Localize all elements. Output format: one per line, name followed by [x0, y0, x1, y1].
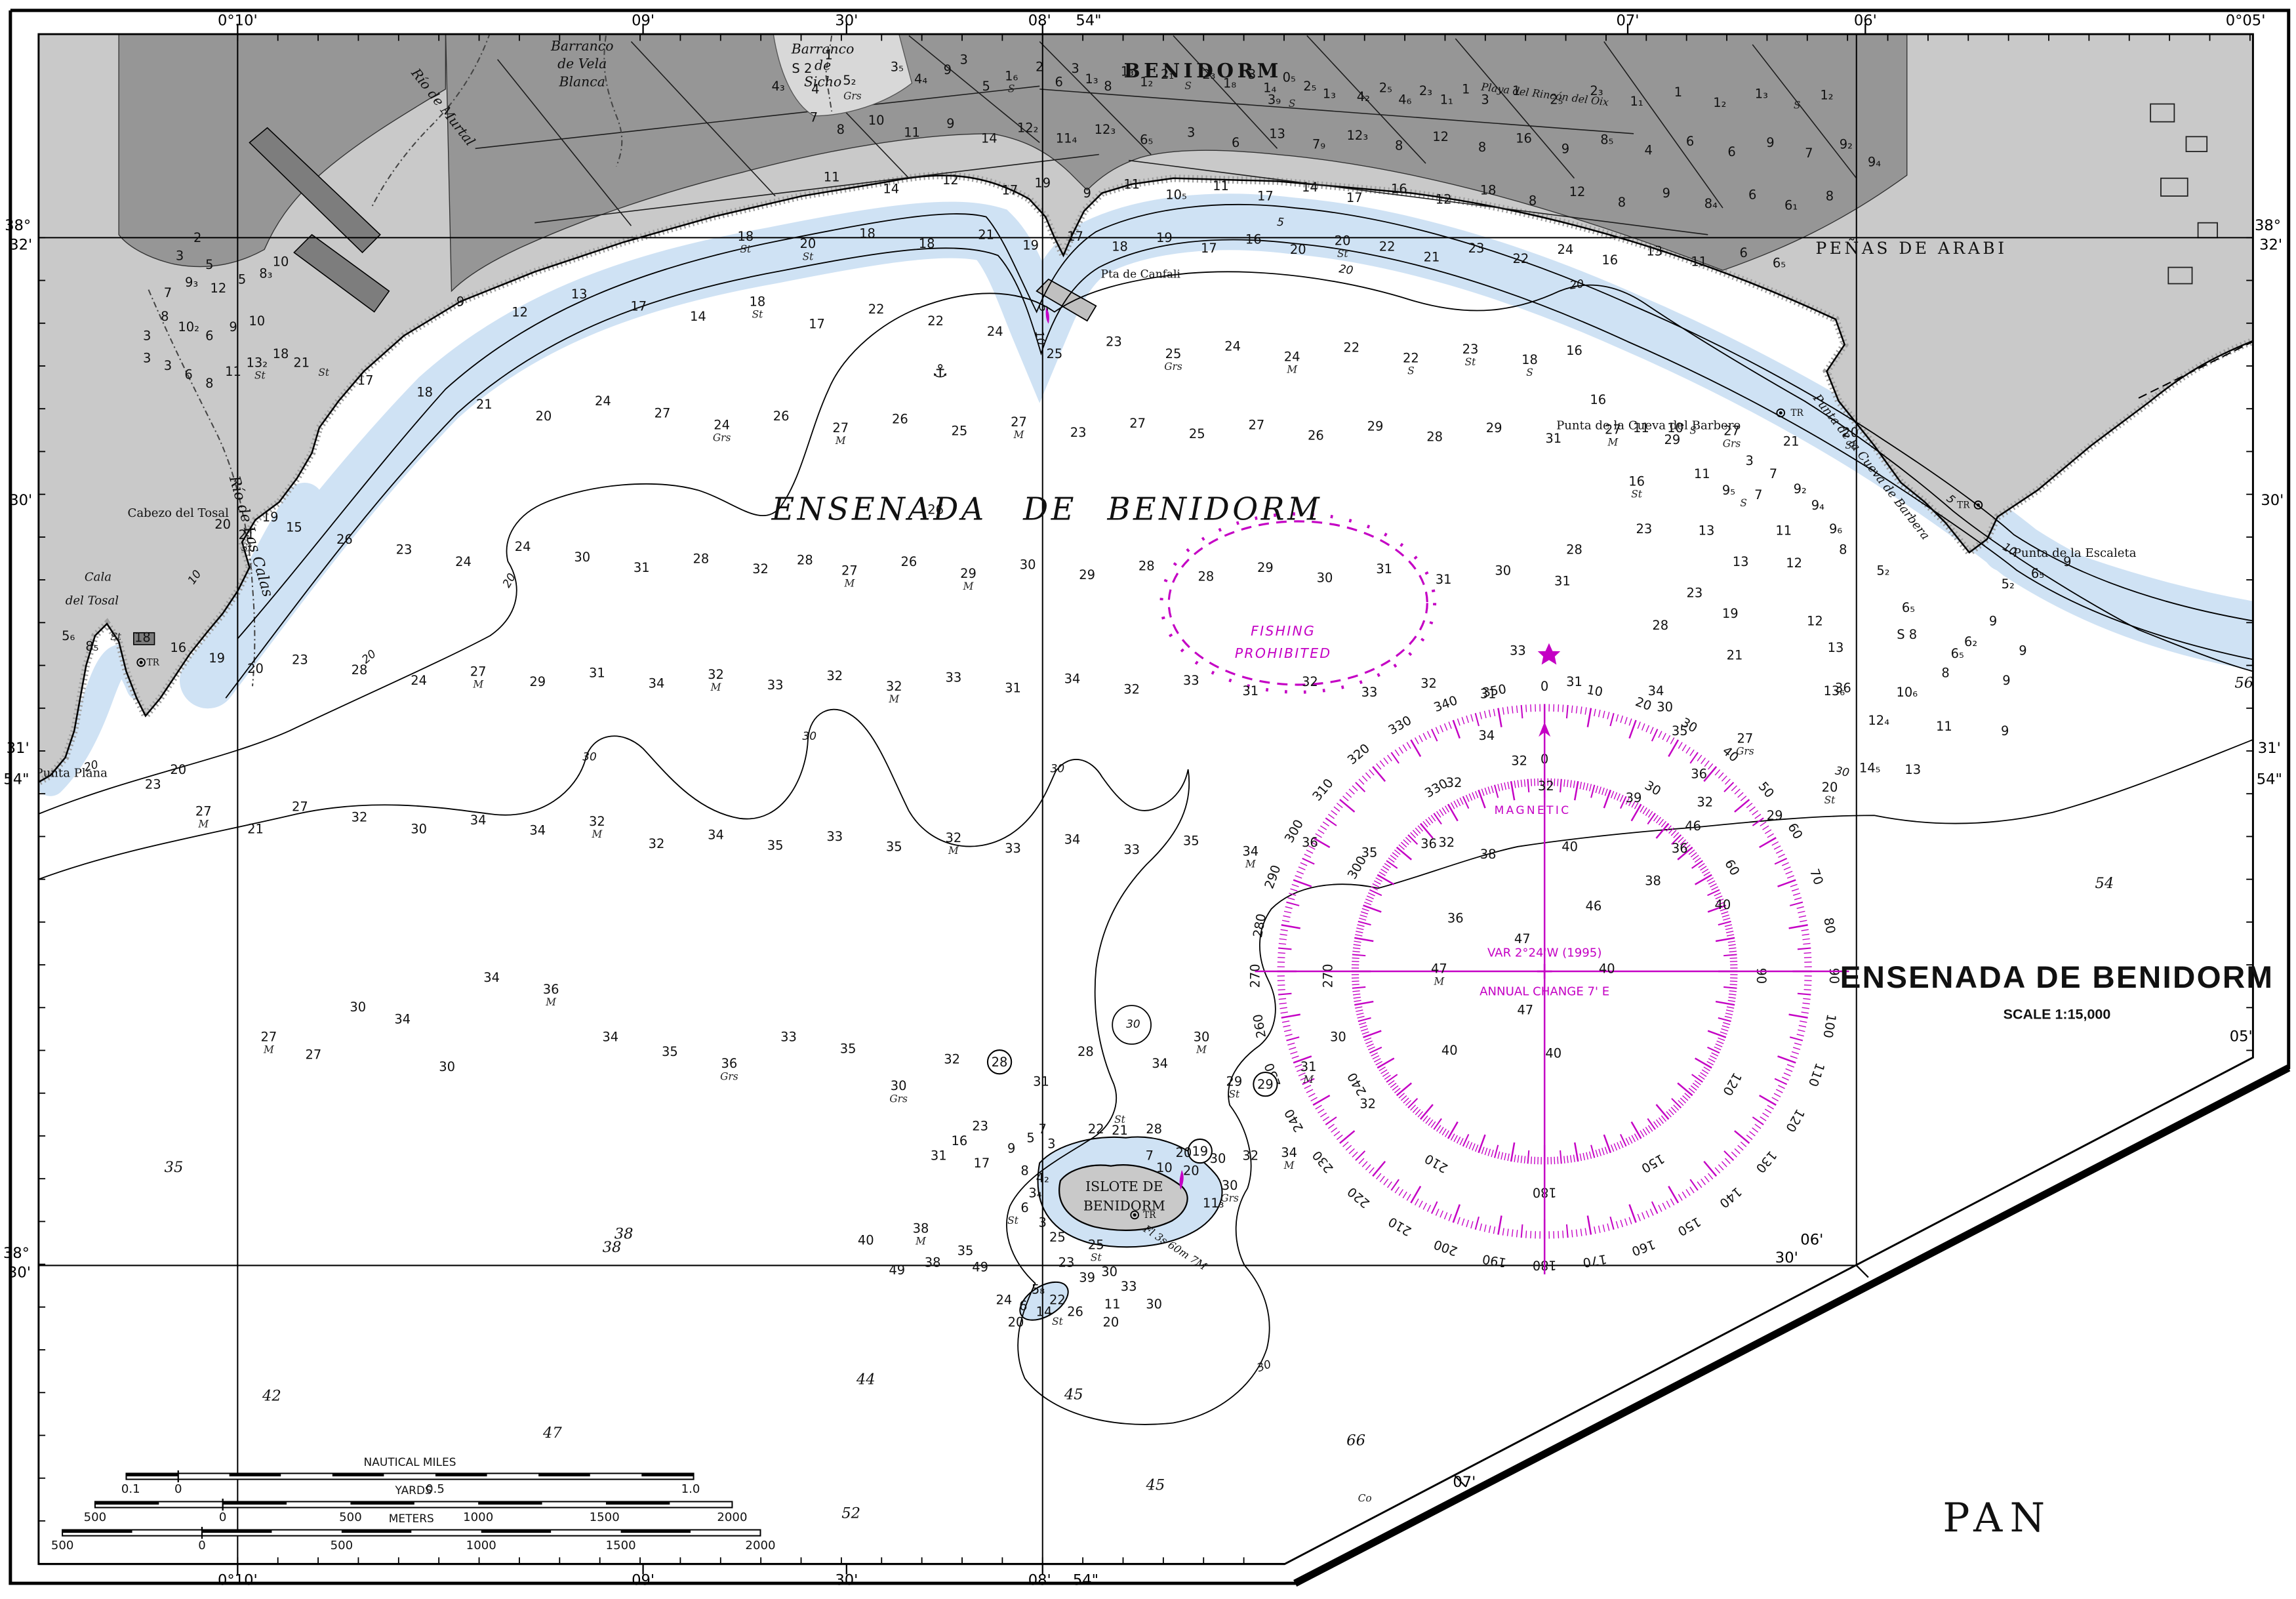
sounding: 36	[1447, 910, 1464, 925]
sounding: 1₂	[1820, 88, 1833, 103]
sounding: 11	[1691, 254, 1707, 269]
sounding: 23	[1070, 425, 1087, 440]
fishing-label-line1: FISHING	[1251, 623, 1316, 639]
sounding: 21	[1424, 250, 1440, 265]
sounding: 16	[1628, 474, 1645, 489]
sounding: 38	[1645, 874, 1661, 889]
sounding: 23	[1462, 342, 1479, 357]
grid-label-top: 09'	[632, 12, 655, 29]
sounding: 32	[1697, 795, 1713, 810]
sounding: 23	[1468, 241, 1485, 256]
sounding: 6	[184, 367, 192, 382]
sounding: 19	[1156, 230, 1173, 245]
sounding: 27	[655, 405, 671, 420]
sounding: 39	[1626, 790, 1642, 805]
compass-inner-label: 90	[1754, 968, 1769, 984]
sounding: 40	[1441, 1043, 1458, 1058]
sounding: 20	[800, 236, 816, 251]
sounding: 22	[868, 302, 885, 317]
sounding: 10	[249, 314, 265, 329]
grid-label-bottom: 09'	[632, 1571, 655, 1589]
sounding: 16	[1566, 343, 1582, 358]
sounding: 11	[1104, 1297, 1121, 1312]
scalebar-segment	[62, 1530, 132, 1533]
sounding: 33	[1361, 685, 1378, 700]
tick	[1554, 779, 1555, 786]
scalebar-label: 500	[339, 1510, 362, 1524]
sounding: 9	[1989, 613, 1997, 628]
sounding: 6₅	[1140, 132, 1153, 148]
sounding: 11	[1694, 466, 1710, 481]
sounding: Grs	[889, 1093, 908, 1104]
sounding: 23	[1636, 521, 1653, 536]
sounding: 27	[1011, 415, 1027, 430]
sounding: 5₂	[2002, 577, 2015, 592]
sounding: 32	[886, 679, 902, 694]
sounding: 24	[1224, 338, 1241, 354]
circled-sounding: 19	[1192, 1144, 1208, 1159]
sounding: M	[1283, 1160, 1295, 1171]
scalebar-label: 2000	[745, 1539, 775, 1552]
scalebar-label: 1000	[463, 1510, 493, 1524]
place-name-del-tosal: del Tosal	[66, 594, 119, 608]
compass-outer-label: 90	[1826, 968, 1842, 984]
sounding: 28	[1146, 1122, 1162, 1137]
sounding: 29	[1079, 567, 1095, 582]
tick	[1352, 961, 1359, 962]
sounding: 8	[1618, 195, 1626, 210]
sounding: 13₂	[246, 355, 268, 370]
sounding: 22	[1513, 251, 1529, 266]
sounding: 2₃	[1419, 83, 1432, 98]
sounding: 4	[1645, 143, 1653, 158]
tick	[1563, 704, 1563, 712]
tick	[1278, 953, 1285, 954]
sounding: 16	[1245, 232, 1262, 247]
sounding: 38	[913, 1221, 929, 1236]
sounding: 22	[1379, 239, 1396, 254]
sea-name-ensenada: ENSENADA	[771, 492, 987, 528]
sounding: 9₅	[1722, 483, 1735, 498]
sounding: 30	[1657, 700, 1673, 715]
grid-label-right: 31'	[2258, 740, 2281, 757]
sounding: 8	[1826, 189, 1834, 204]
sounding: M	[710, 681, 722, 693]
sounding: St	[1465, 356, 1477, 368]
place-name-tr: TR	[1957, 500, 1970, 510]
sounding: 31	[1545, 431, 1561, 446]
sounding: 9₂	[1794, 481, 1807, 496]
deep-sounding: 54	[2095, 875, 2114, 892]
sounding: 33	[826, 829, 843, 844]
sounding: 17	[974, 1156, 990, 1171]
sounding: 24	[455, 554, 472, 569]
deep-sounding: 47	[542, 1425, 562, 1442]
scalebar-label: 1.0	[681, 1482, 700, 1496]
sounding: 40	[1545, 1045, 1561, 1061]
sounding: 17	[357, 373, 374, 388]
sounding: 36	[1672, 841, 1688, 856]
sounding: 4₄	[914, 71, 927, 87]
sounding: 11	[904, 125, 920, 140]
sounding: St	[803, 251, 815, 262]
deep-sounding: 45	[1145, 1476, 1165, 1493]
compass-outer-label: 0	[1541, 679, 1548, 694]
sounding: 17	[809, 316, 825, 331]
sounding: 28	[693, 551, 710, 566]
sounding: M	[835, 435, 847, 447]
sounding: 30	[1210, 1151, 1226, 1166]
circled-sounding: 29	[1257, 1077, 1274, 1092]
contour-label: 10	[1032, 330, 1047, 346]
sounding: 30	[350, 1000, 366, 1015]
tick	[1554, 1157, 1555, 1164]
sounding: 8	[161, 309, 169, 324]
sounding: 3	[1047, 1137, 1055, 1152]
sounding: St	[110, 631, 122, 643]
sounding: 1₂	[1713, 95, 1726, 110]
grid-label-diagonal: 07'	[1453, 1474, 1476, 1491]
sounding: 2₅	[1303, 79, 1316, 94]
tick	[1526, 704, 1527, 712]
sounding: 1₁	[1630, 94, 1643, 109]
place-name-barranco: Barranco	[791, 41, 855, 57]
sounding: 23	[1058, 1255, 1075, 1270]
sounding: 8₅	[85, 639, 98, 654]
sounding: St	[1824, 794, 1836, 806]
tick	[1730, 981, 1737, 982]
scalebar-label: 1500	[590, 1510, 620, 1524]
sounding: 6	[1232, 135, 1239, 150]
sounding: 4₃	[772, 79, 785, 94]
sounding: 4₂	[1357, 89, 1370, 104]
sounding: 49	[972, 1259, 988, 1274]
sounding: 7₉	[1312, 136, 1325, 152]
sounding: 6	[1019, 1298, 1027, 1313]
scalebar-label: 0	[198, 1539, 206, 1552]
contour-label: 30	[802, 730, 816, 743]
sounding: 22	[1403, 351, 1419, 366]
sounding: 32	[826, 668, 843, 683]
sounding: 17	[1346, 190, 1363, 205]
place-name-de-vela: de Vela	[557, 56, 607, 71]
sounding: 18	[750, 294, 766, 310]
sounding: 33	[1123, 842, 1140, 857]
sounding: 21	[476, 397, 493, 412]
sounding: 13	[571, 287, 588, 302]
sounding: 12₃	[1095, 122, 1116, 137]
sounding: 13	[1269, 127, 1285, 142]
sounding: 18	[859, 226, 876, 241]
sounding: 34	[708, 827, 724, 842]
sounding: 7	[1146, 1148, 1154, 1164]
sounding: S	[1008, 83, 1015, 94]
sounding: 34	[1242, 843, 1259, 859]
sounding: 36	[721, 1056, 738, 1071]
scalebar-label: 0.1	[121, 1482, 140, 1496]
contour-label: 30	[1834, 764, 1851, 779]
sounding: 32	[944, 1051, 960, 1066]
sounding: 21	[1727, 647, 1743, 662]
sounding: 14	[1302, 180, 1318, 195]
sounding: 34	[1648, 683, 1664, 698]
sounding: 31	[1566, 674, 1582, 689]
sounding: 33	[1005, 841, 1021, 856]
sounding: 29	[1767, 808, 1783, 823]
grid-label-bottom: 54"	[1073, 1571, 1098, 1589]
sounding: 8	[205, 376, 213, 391]
sounding: 30	[1194, 1029, 1210, 1044]
sounding: 1₆	[1005, 68, 1018, 83]
sounding: M	[1196, 1044, 1207, 1056]
sounding: 6	[1055, 74, 1062, 89]
scalebar-label: 500	[331, 1539, 353, 1552]
tick	[1278, 985, 1285, 986]
sounding: 31	[931, 1148, 947, 1164]
sounding: 12	[1786, 556, 1802, 571]
sounding: S	[1289, 98, 1296, 110]
place-name-benidorm: BENIDORM	[1124, 59, 1282, 82]
sounding: 6	[1727, 144, 1735, 159]
sounding: 0₅	[1283, 70, 1296, 85]
sounding: 13	[1733, 554, 1749, 569]
sounding: 28	[1078, 1044, 1094, 1059]
sounding: 39	[1079, 1270, 1095, 1285]
sounding: 9	[1007, 1141, 1015, 1156]
sounding: 28	[1652, 618, 1668, 633]
sounding: 3₉	[1268, 92, 1281, 108]
sounding: 18	[737, 229, 754, 244]
sounding: 8	[1104, 79, 1112, 94]
circled-sounding: 28	[992, 1055, 1008, 1070]
sounding: 15	[286, 520, 302, 535]
sounding: 4₂	[1036, 1171, 1049, 1186]
sounding: 29	[1486, 420, 1502, 435]
sounding: 27	[305, 1047, 321, 1063]
sounding: 11	[1936, 719, 1952, 734]
sounding: 27	[832, 420, 849, 435]
tick	[1804, 985, 1811, 986]
sounding: 36	[1302, 835, 1318, 850]
tick	[1558, 704, 1559, 712]
sounding: St	[1091, 1252, 1102, 1264]
nautical-chart-canvas[interactable]: 0102030405060708090100110120130140150160…	[0, 0, 2296, 1598]
sounding: 35	[1672, 723, 1688, 739]
sounding: 19	[262, 510, 279, 525]
sounding: 14	[1036, 1304, 1053, 1319]
place-name-punta-de-la-escaleta: Punta de la Escaleta	[2013, 546, 2137, 560]
sounding: 28	[1566, 542, 1582, 557]
sounding: 20	[1290, 242, 1306, 257]
sounding: 3₅	[891, 60, 904, 75]
sounding: 31	[1033, 1074, 1049, 1089]
scalebar-title: NAUTICAL MILES	[364, 1456, 456, 1469]
sounding: M	[1013, 429, 1025, 441]
tick	[1278, 990, 1285, 990]
grid-label-left: 38°	[5, 217, 31, 234]
sounding: M	[1302, 1074, 1314, 1085]
sounding: 11	[1123, 177, 1140, 192]
sounding: 25	[1165, 346, 1182, 361]
sounding: 32	[752, 561, 769, 577]
scalebar-segment	[478, 1502, 542, 1505]
sounding: 28	[1426, 430, 1443, 445]
compass-inner-label: 270	[1320, 963, 1335, 988]
place-name-islote-de: ISLOTE DE	[1085, 1179, 1163, 1194]
sounding: 24	[1284, 349, 1300, 364]
sounding: 32	[1511, 753, 1527, 768]
sounding: 9₄	[1811, 498, 1824, 513]
sounding: 5₆	[62, 628, 75, 643]
sounding: 32	[1123, 682, 1140, 697]
sounding: M	[843, 578, 855, 590]
sounding: M	[591, 828, 603, 840]
sounding: 1₃	[1323, 86, 1336, 101]
sounding: 18	[134, 630, 151, 645]
scalebar-label: 2000	[717, 1510, 747, 1524]
sounding: 8	[1478, 140, 1486, 155]
sounding: 13	[1646, 244, 1662, 259]
sounding: 34	[649, 676, 665, 691]
sounding: St	[752, 309, 764, 321]
sounding: 21	[247, 821, 264, 836]
grid-label-bottom: 30'	[835, 1571, 858, 1589]
sounding: 9₂	[1840, 136, 1853, 152]
sounding: 6₂	[1964, 634, 1977, 649]
tick	[1526, 1230, 1527, 1238]
sounding: Grs	[1164, 361, 1182, 373]
sounding: 27	[1737, 731, 1754, 746]
sounding: 9	[2002, 673, 2010, 688]
sounding: 6₅	[1902, 600, 1915, 615]
sounding: 34	[529, 823, 546, 838]
sounding: 23	[396, 542, 413, 557]
tick	[1535, 779, 1535, 786]
sounding: St	[1337, 248, 1349, 260]
sounding: 19	[1722, 606, 1739, 621]
sounding: 34	[1152, 1056, 1168, 1071]
sounding: 31	[1242, 683, 1259, 698]
sounding: 2₅	[1379, 80, 1392, 95]
sounding: Grs	[1736, 745, 1754, 757]
sounding: 30	[1317, 571, 1333, 586]
scalebar-segment	[538, 1473, 590, 1476]
sounding: 35	[957, 1244, 974, 1259]
sounding: 2	[193, 230, 201, 245]
sounding: 6₅	[1951, 646, 1964, 661]
sounding: 3	[164, 358, 172, 373]
chart-title: ENSENADA DE BENIDORM	[1840, 960, 2274, 995]
sounding: 33	[1121, 1279, 1137, 1294]
sounding: St	[318, 367, 330, 378]
sounding: M	[1245, 859, 1257, 870]
scalebar-segment	[481, 1530, 551, 1533]
sounding: 7	[1769, 466, 1777, 481]
sounding: 11₄	[1056, 131, 1078, 146]
sounding: 24	[1557, 242, 1573, 257]
scalebar	[126, 1473, 693, 1479]
sounding: 25	[1049, 1230, 1066, 1245]
place-name-pta-de-canfali: Pta de Canfali	[1101, 268, 1181, 281]
scalebar-segment	[342, 1530, 411, 1533]
variation-line1: VAR 2°24'W (1995)	[1487, 946, 1601, 960]
scalebar-segment	[350, 1502, 414, 1505]
sounding: 8₅	[1600, 132, 1613, 148]
sounding: 49	[889, 1263, 905, 1278]
sounding: 27	[292, 799, 308, 814]
sounding: St	[1007, 1215, 1019, 1226]
scalebar-label: 1000	[466, 1539, 496, 1552]
sounding: 6₁	[1784, 197, 1798, 213]
place-name-tr: TR	[147, 658, 160, 668]
sounding: 9	[946, 116, 954, 131]
sounding: 12	[1432, 129, 1449, 144]
grid-label-top: 08'	[1028, 12, 1051, 29]
sounding: 27	[1129, 416, 1146, 431]
sounding: 3	[1071, 61, 1079, 76]
tick	[1278, 958, 1285, 958]
sounding: 35	[886, 840, 902, 855]
sounding: 20	[1008, 1314, 1024, 1329]
sounding: 28	[797, 553, 813, 568]
sounding: 34	[602, 1029, 618, 1044]
sounding: 20	[247, 661, 264, 676]
deep-sounding: 38	[614, 1226, 634, 1243]
sounding: 35	[1361, 845, 1378, 860]
sounding: 14	[981, 131, 997, 146]
sounding: 12	[942, 172, 959, 188]
sounding: 17	[630, 298, 647, 314]
deep-sounding: Co	[1358, 1493, 1372, 1505]
grid-label-left: 32'	[9, 236, 32, 253]
sounding: 9	[1561, 141, 1569, 156]
sounding: 24	[515, 539, 531, 554]
sounding: 23	[972, 1118, 988, 1133]
place-name-punta-de-la-cueva-del-barbero: Punta de la Cueva del Barbero	[1556, 418, 1741, 432]
sounding: M	[888, 693, 900, 705]
sounding: 9	[1766, 135, 1774, 150]
sounding: 47	[1514, 931, 1531, 946]
sounding: 5	[982, 79, 990, 94]
sounding: 6	[1739, 245, 1747, 260]
grid-label-top: 0°05'	[2226, 12, 2266, 29]
sounding: M	[263, 1044, 275, 1056]
sounding: 26	[901, 554, 917, 569]
scalebar-label: 0	[174, 1482, 182, 1496]
tick	[1531, 779, 1532, 786]
sounding: 47	[1517, 1003, 1533, 1018]
grid-label-left: 38°	[3, 1245, 30, 1262]
sounding: 17	[1002, 183, 1018, 198]
scalebar-segment	[202, 1530, 272, 1533]
place-name-de: de	[815, 57, 831, 73]
place-name-cala: Cala	[85, 570, 111, 584]
sounding: S	[1526, 367, 1533, 378]
tick	[1558, 1231, 1559, 1238]
sounding: 17	[1257, 189, 1274, 204]
sounding: 22	[927, 314, 944, 329]
pan-mark: PAN	[1943, 1495, 2052, 1541]
sounding: 12	[1807, 613, 1823, 628]
tick	[1730, 958, 1737, 959]
sounding: 36	[543, 982, 559, 997]
grid-label-left: 30'	[8, 1265, 31, 1282]
sounding: 31	[1376, 561, 1392, 577]
sounding: 27	[261, 1029, 277, 1044]
sounding: 18	[416, 385, 433, 400]
place-name-punta-plana: Punta Plana	[35, 766, 108, 780]
sounding: 34	[394, 1011, 411, 1026]
